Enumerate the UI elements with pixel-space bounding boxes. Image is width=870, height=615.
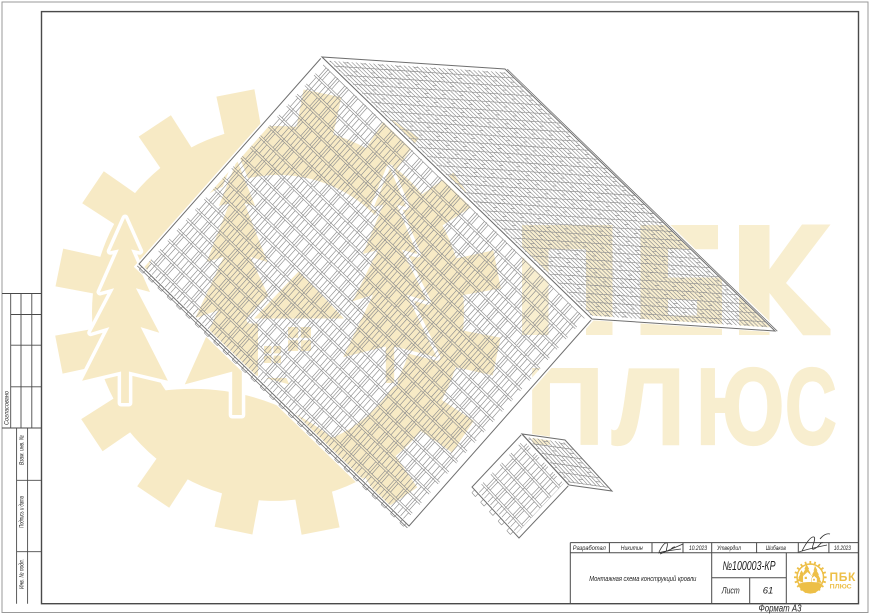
svg-text:Л: Л: [612, 346, 685, 467]
svg-text:Разработал: Разработал: [573, 544, 606, 552]
svg-text:Подпись и дата: Подпись и дата: [18, 496, 26, 528]
svg-text:Лист: Лист: [721, 586, 740, 597]
svg-text:Формат А3: Формат А3: [759, 604, 802, 615]
svg-text:Шибаков: Шибаков: [766, 544, 786, 552]
svg-text:61: 61: [763, 586, 774, 597]
svg-text:ПЛЮС: ПЛЮС: [830, 583, 852, 590]
svg-text:Инв. № подл.: Инв. № подл.: [18, 559, 26, 589]
svg-text:№100003-КР: №100003-КР: [723, 559, 776, 573]
svg-text:Монтажная схема конструкций кр: Монтажная схема конструкций кровли: [589, 574, 697, 583]
svg-text:С: С: [785, 347, 837, 467]
svg-text:Утвердил: Утвердил: [716, 544, 741, 552]
svg-text:Ю: Ю: [696, 345, 784, 467]
svg-text:Никитин: Никитин: [621, 545, 643, 552]
svg-text:ПБК: ПБК: [830, 570, 856, 584]
svg-text:Взам. инв. №: Взам. инв. №: [19, 435, 26, 465]
svg-text:10.2023: 10.2023: [834, 545, 851, 552]
svg-text:Согласовано: Согласовано: [4, 391, 11, 425]
svg-text:10.2023: 10.2023: [689, 545, 707, 552]
